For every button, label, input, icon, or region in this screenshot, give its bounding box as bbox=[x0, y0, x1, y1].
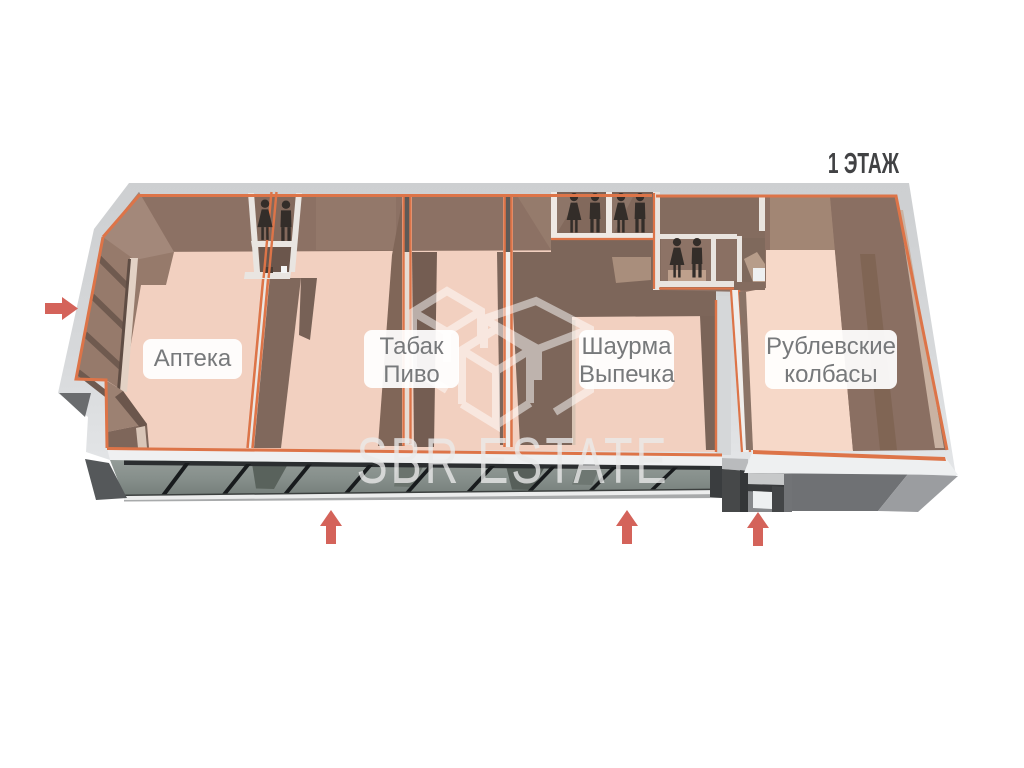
svg-text:SBR ESTATE: SBR ESTATE bbox=[356, 426, 669, 498]
svg-text:1 ЭТАЖ: 1 ЭТАЖ bbox=[828, 148, 900, 180]
